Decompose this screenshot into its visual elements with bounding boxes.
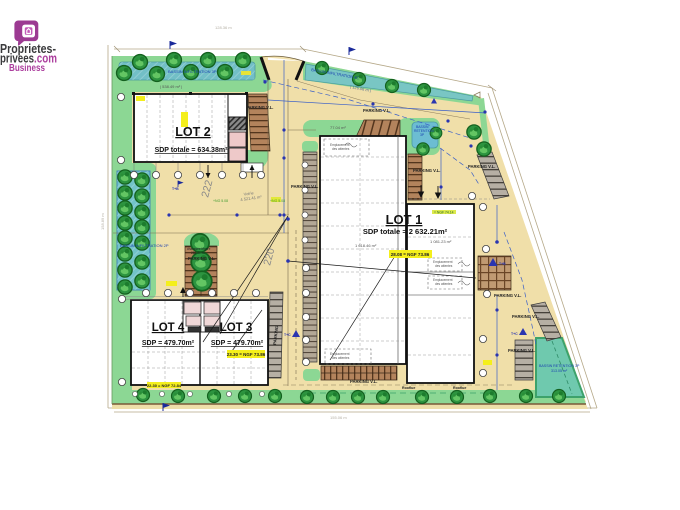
svg-text:Business: Business (9, 62, 45, 74)
svg-text:LOT 2: LOT 2 (175, 125, 210, 139)
svg-text:T+B: T+B (499, 262, 506, 266)
svg-text:des attentes: des attentes (332, 147, 350, 151)
svg-text:77.04 m²: 77.04 m² (330, 125, 346, 130)
svg-text:SDP totale = 2 632.21m²: SDP totale = 2 632.21m² (363, 227, 448, 236)
svg-text:SDP = 479.70m²: SDP = 479.70m² (142, 340, 195, 347)
svg-text:PARKING V.L.: PARKING V.L. (350, 379, 377, 384)
svg-text:28.08 = NGF 73.86: 28.08 = NGF 73.86 (391, 252, 430, 257)
svg-text:23.30 = NGF 73.86: 23.30 = NGF 73.86 (227, 352, 266, 357)
svg-text:T+B: T+B (172, 187, 179, 191)
svg-text:BASSIN INFILTRATION 3P: BASSIN INFILTRATION 3P (168, 69, 217, 74)
svg-text:PARKING V.L.: PARKING V.L. (468, 164, 495, 169)
svg-text:T+C: T+C (511, 332, 518, 336)
svg-text:282.41 m²: 282.41 m² (191, 251, 205, 255)
svg-text:SDP = 479.70m²: SDP = 479.70m² (211, 340, 264, 347)
svg-text:des attentes: des attentes (332, 356, 350, 360)
svg-text:PARKING V.L.: PARKING V.L. (363, 108, 390, 113)
svg-text:SDP totale = 634.38m²: SDP totale = 634.38m² (155, 147, 228, 154)
svg-text:158.89 m: 158.89 m (100, 213, 105, 230)
svg-text:= NGF 74.14: = NGF 74.14 (434, 210, 454, 214)
svg-text:1 081.23 m²: 1 081.23 m² (430, 239, 452, 244)
svg-text:PARKING V.L.: PARKING V.L. (508, 348, 535, 353)
svg-text:LOT 4: LOT 4 (152, 322, 185, 334)
svg-text:22.30 = NGF 72.84: 22.30 = NGF 72.84 (147, 383, 182, 388)
svg-text:Rooflue: Rooflue (402, 386, 415, 390)
svg-text:PARKING V.L.: PARKING V.L. (188, 256, 215, 261)
svg-text:+NG 5.08: +NG 5.08 (213, 199, 228, 203)
svg-text:| 538.49 m² |: | 538.49 m² | (160, 84, 182, 89)
svg-text:LOT 3: LOT 3 (220, 322, 253, 334)
svg-text:1 618.46 m²: 1 618.46 m² (355, 243, 377, 248)
svg-text:PARKING V.L.: PARKING V.L. (413, 168, 440, 173)
svg-text:des attentes: des attentes (435, 264, 453, 268)
svg-text:PARKING V.L.: PARKING V.L. (291, 184, 318, 189)
svg-text:T+C: T+C (284, 333, 291, 337)
svg-text:155.06 m: 155.06 m (330, 415, 347, 420)
svg-text:+NG 5.08: +NG 5.08 (270, 199, 285, 203)
svg-text:3P: 3P (420, 133, 425, 137)
svg-text:BASSIN INFILTRATION 2P: BASSIN INFILTRATION 2P (120, 243, 169, 248)
svg-text:PARKING V.L.: PARKING V.L. (246, 105, 273, 110)
svg-text:des attentes: des attentes (435, 282, 453, 286)
svg-text:BASSIN RETENTION 3P: BASSIN RETENTION 3P (539, 364, 580, 368)
svg-text:313.05 m²: 313.05 m² (551, 369, 568, 373)
svg-text:128.36 m: 128.36 m (215, 25, 232, 30)
svg-text:PARKING V.L.: PARKING V.L. (512, 314, 539, 319)
svg-text:PARKING V.L.: PARKING V.L. (494, 293, 521, 298)
svg-text:LOT 1: LOT 1 (386, 212, 423, 227)
svg-text:Rooflue: Rooflue (453, 386, 466, 390)
